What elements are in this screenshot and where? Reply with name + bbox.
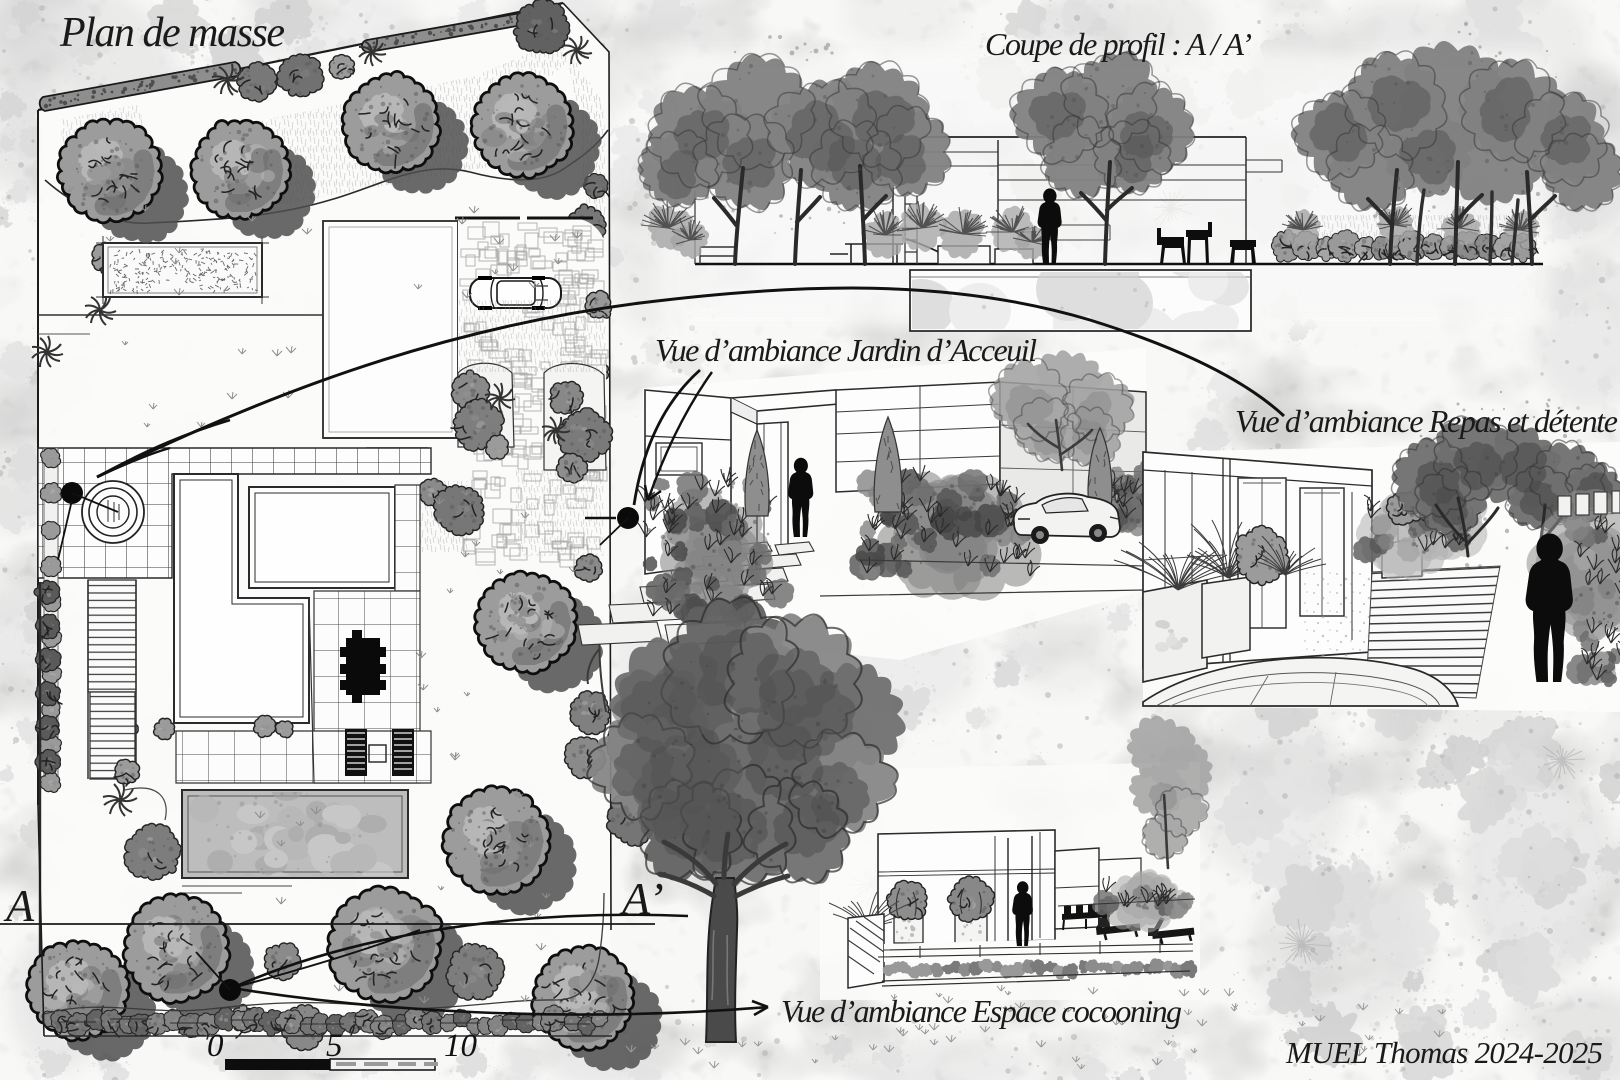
svg-text:Vue d’ambiance Jardin d’Acceui: Vue d’ambiance Jardin d’Acceuil xyxy=(655,332,1037,368)
svg-text:Vue d’ambiance Espace cocoonin: Vue d’ambiance Espace cocooning xyxy=(781,993,1182,1029)
svg-text:Vue d’ambiance Repas et détent: Vue d’ambiance Repas et détente xyxy=(1235,403,1618,439)
svg-text:Coupe de profil : A / A’: Coupe de profil : A / A’ xyxy=(985,26,1252,62)
svg-text:A’: A’ xyxy=(619,873,664,924)
svg-text:0: 0 xyxy=(207,1028,224,1064)
svg-text:MUEL Thomas 2024-2025: MUEL Thomas 2024-2025 xyxy=(1285,1035,1603,1070)
svg-text:A: A xyxy=(3,880,35,931)
svg-text:Plan de masse: Plan de masse xyxy=(59,10,285,56)
svg-text:10: 10 xyxy=(444,1028,478,1064)
